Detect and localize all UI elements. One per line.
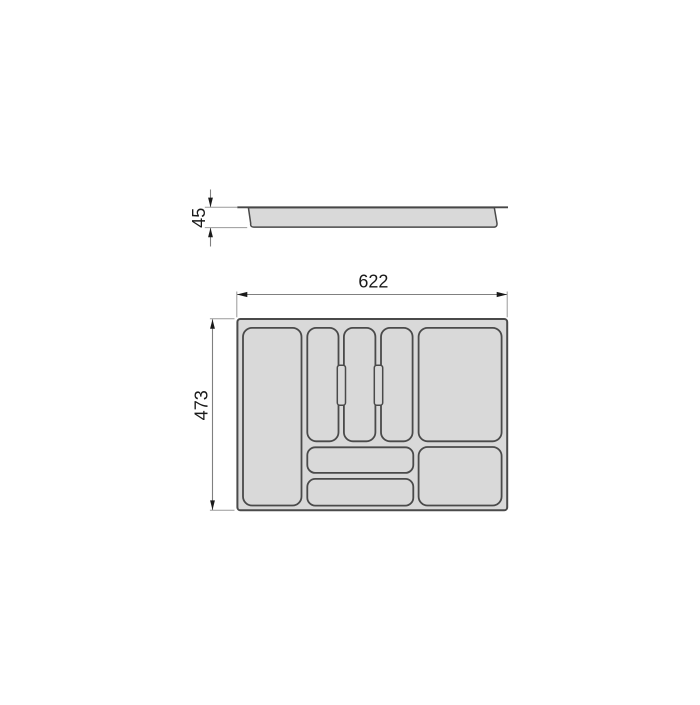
svg-text:473: 473 (192, 390, 212, 420)
svg-text:622: 622 (358, 272, 388, 292)
svg-text:45: 45 (189, 208, 209, 228)
